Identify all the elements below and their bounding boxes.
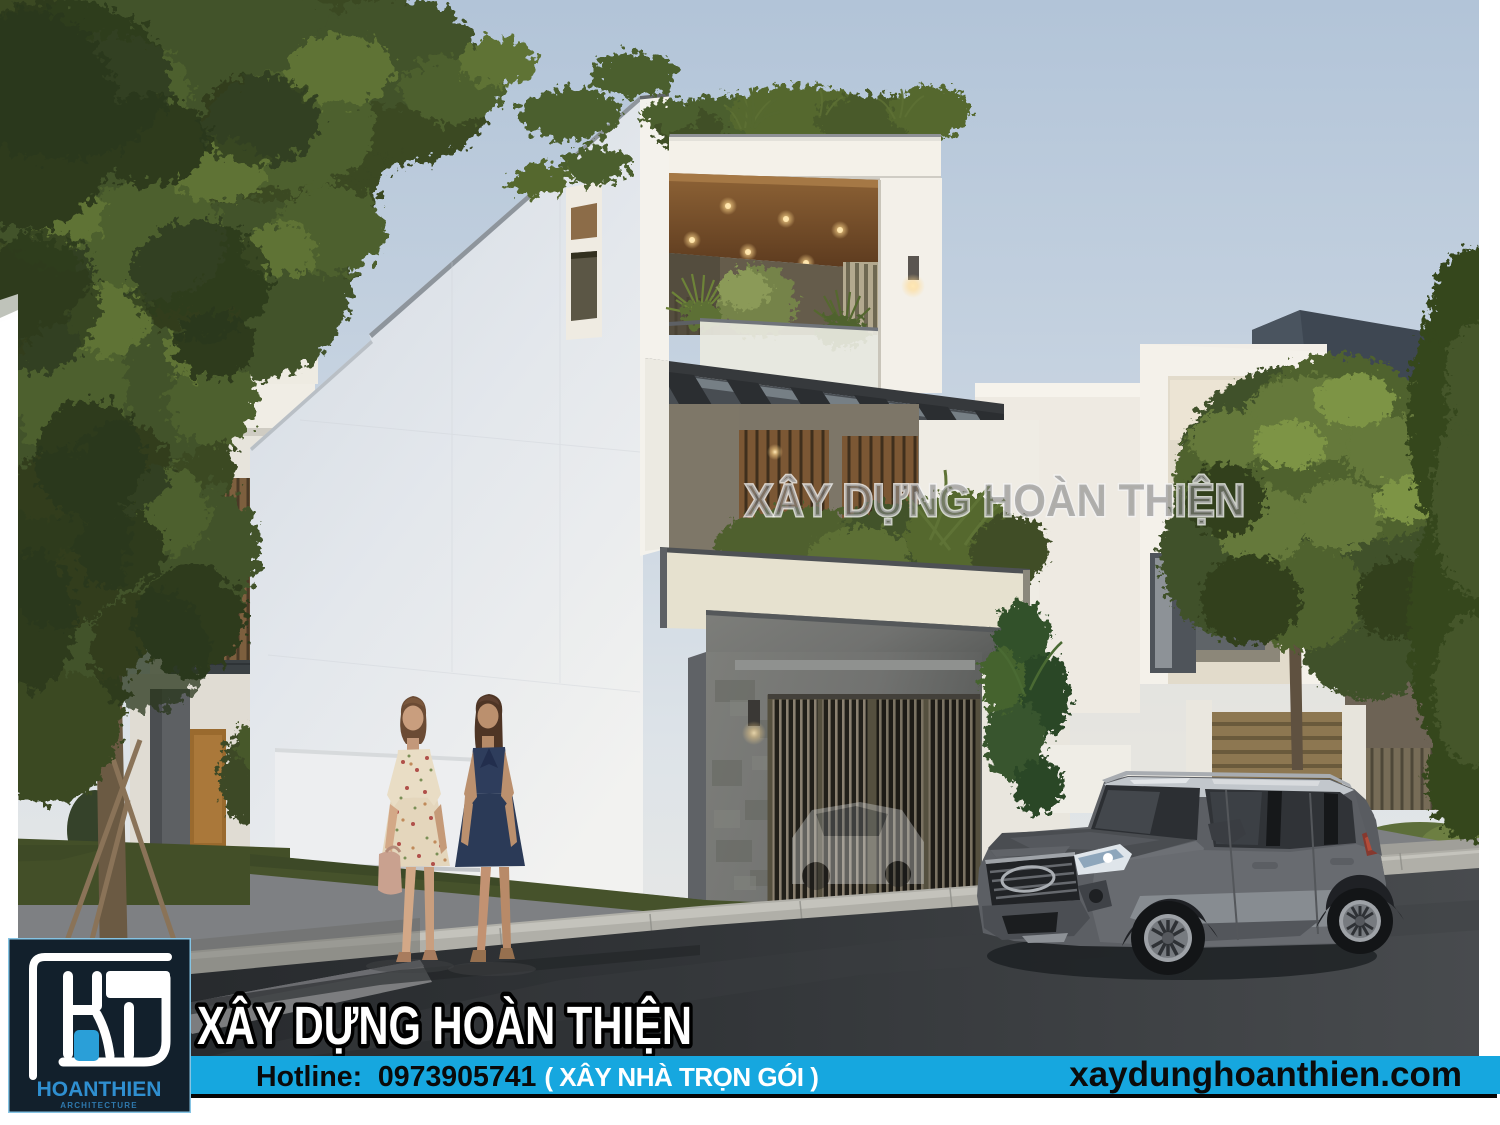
svg-text:XÂY DỰNG HOÀN THIỆN: XÂY DỰNG HOÀN THIỆN: [197, 995, 692, 1056]
svg-text:XÂY DỰNG HOÀN THIỆN: XÂY DỰNG HOÀN THIỆN: [745, 475, 1245, 526]
svg-text:HOANTHIEN: HOANTHIEN: [37, 1078, 162, 1101]
svg-text:ARCHITECTURE: ARCHITECTURE: [60, 1101, 138, 1110]
